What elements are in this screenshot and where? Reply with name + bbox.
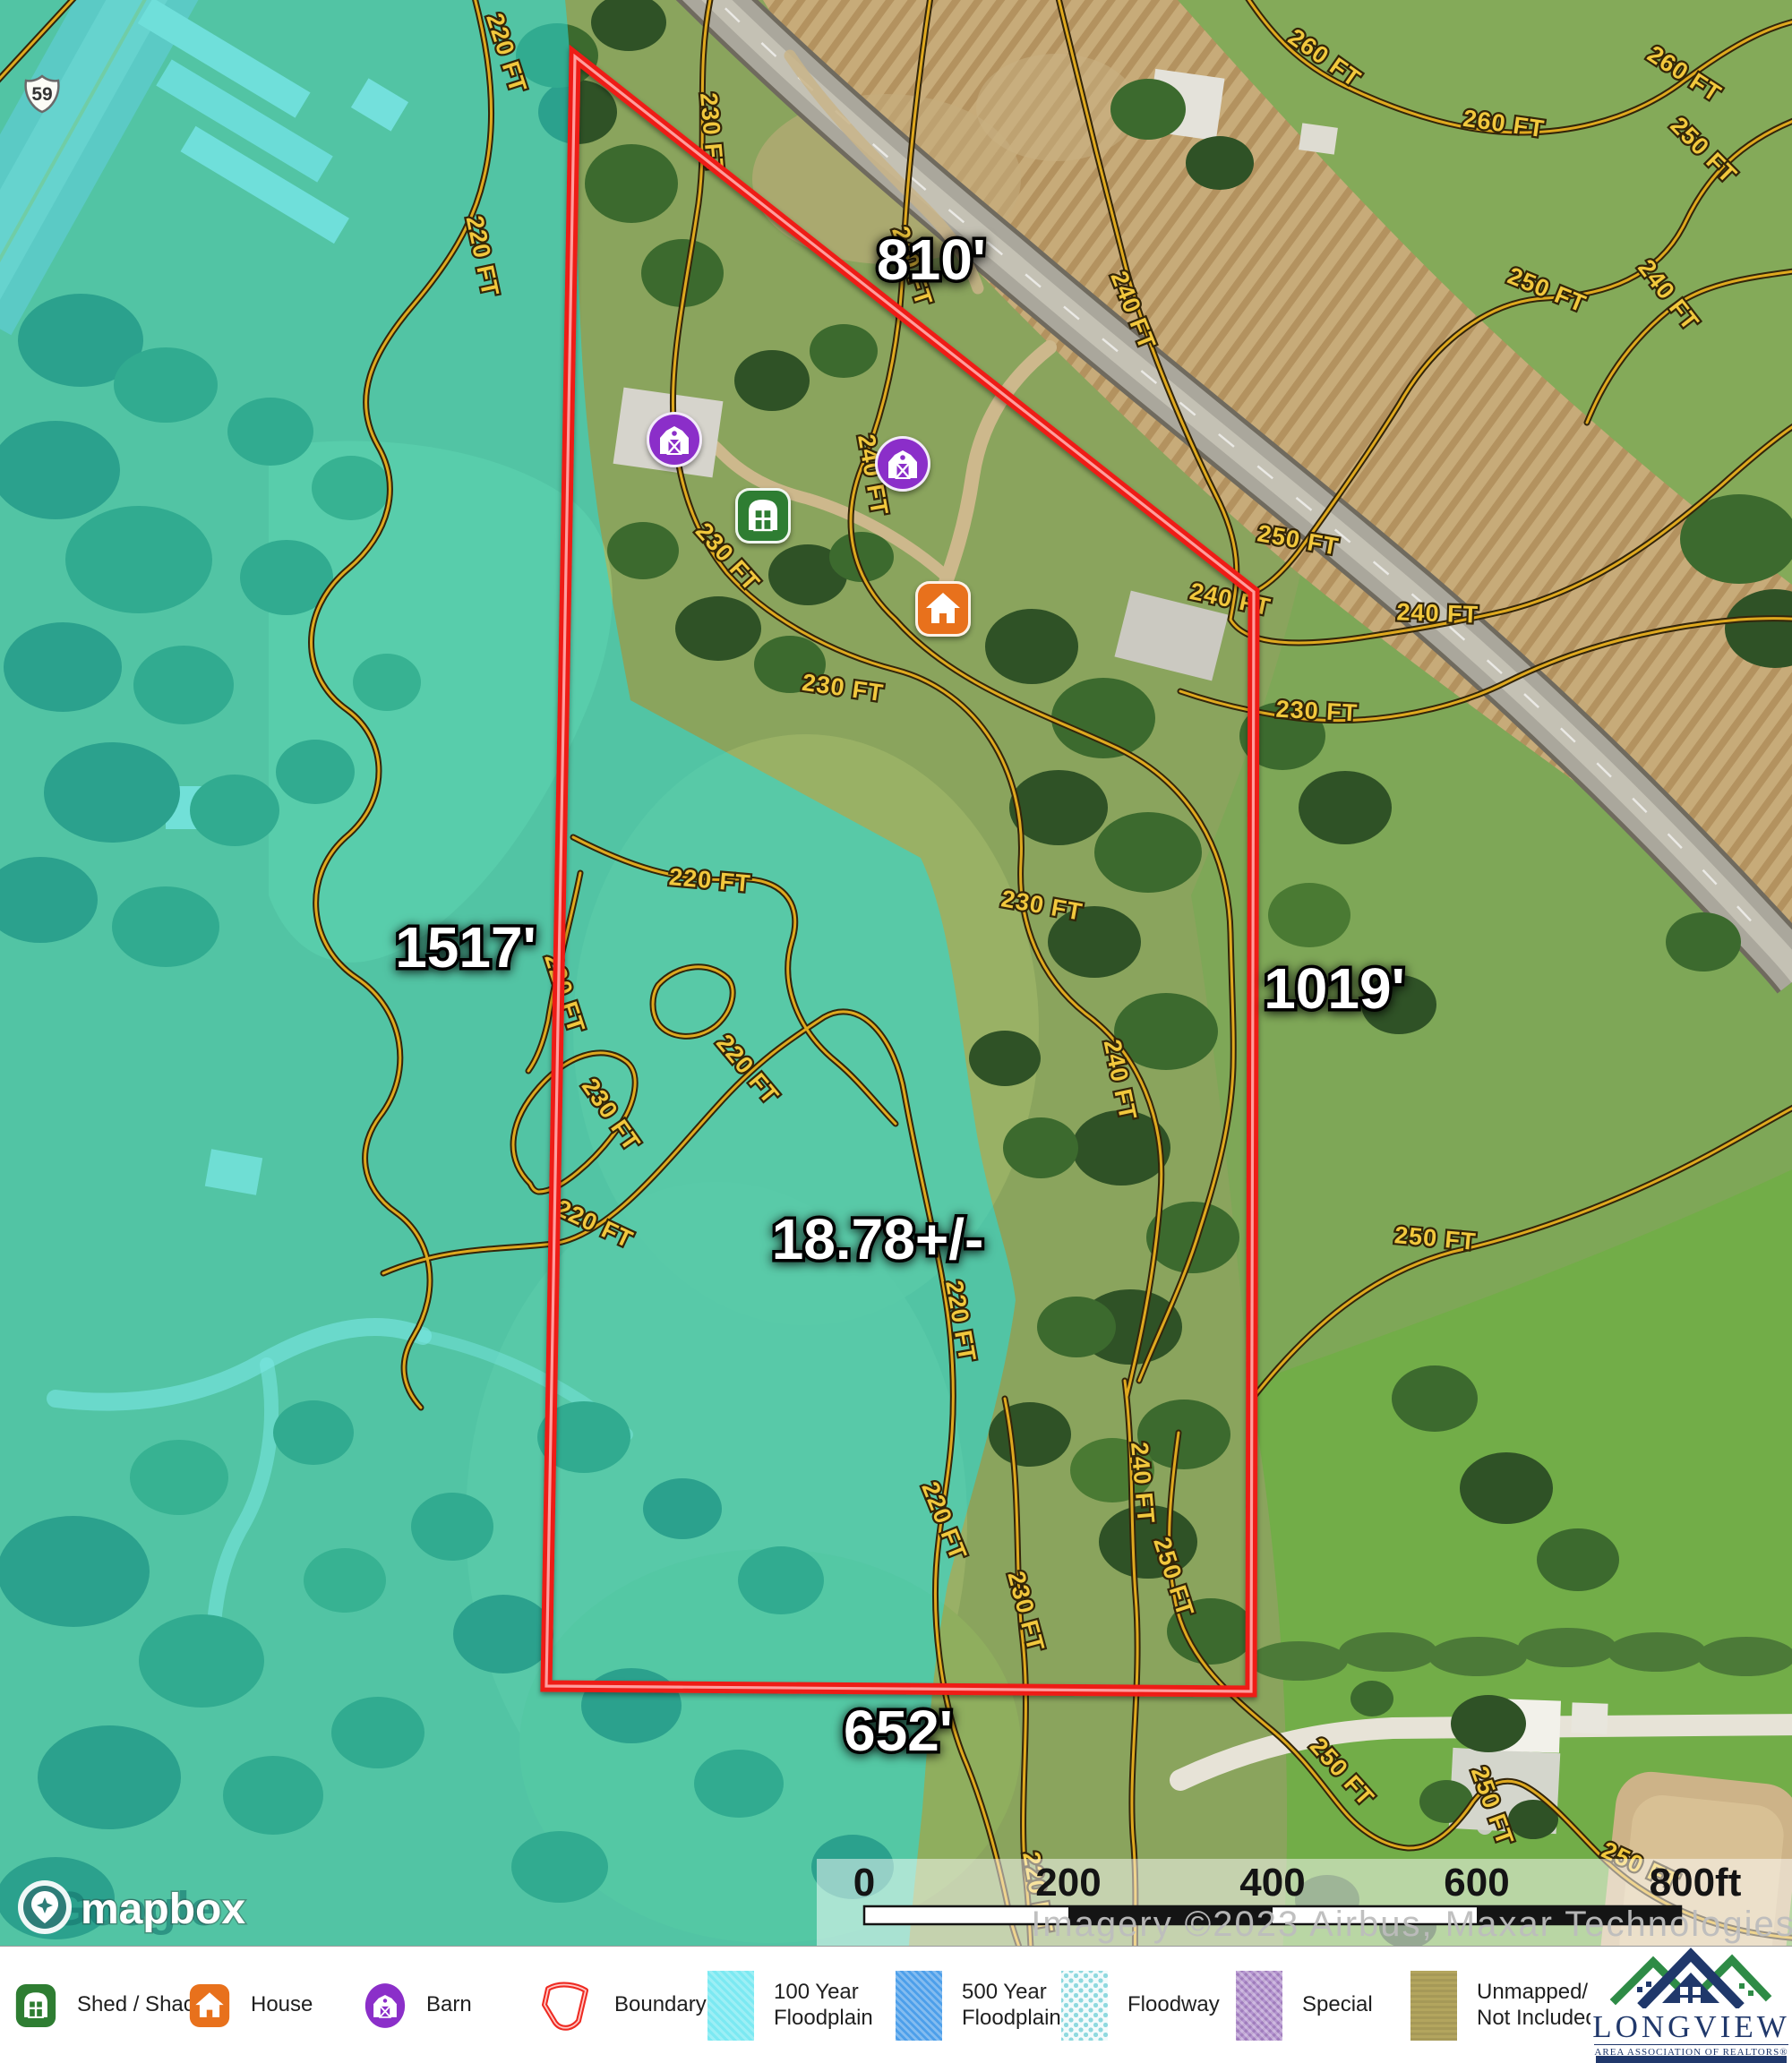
special-swatch <box>1236 1971 1282 2041</box>
side-length-right: 1019' <box>1264 956 1405 1021</box>
legend-item-500yr-floodplain: 500 Year Floodplain <box>896 1947 1062 2063</box>
flood-map-page: 220 FT 220 FT 230 FT 230 FT 240 FT 240 F… <box>0 0 1792 2063</box>
legend-item-floodway: Floodway <box>1061 1947 1220 2063</box>
legend-item-special: Special <box>1236 1947 1373 2063</box>
legend-item-100yr-floodplain: 100 Year Floodplain <box>707 1947 874 2063</box>
scale-tick: 600 <box>1444 1861 1509 1905</box>
mapbox-wordmark: mapbox <box>81 1886 245 1933</box>
side-length-bottom: 652' <box>844 1699 953 1763</box>
scale-tick: 0 <box>853 1861 875 1905</box>
rooftops-icon <box>1591 1947 1792 2008</box>
scale-tick: 200 <box>1035 1861 1101 1905</box>
logo-bar <box>1596 2056 1787 2063</box>
imagery-attribution: Imagery ©2023 Airbus, Maxar Technologies <box>1031 1905 1792 1944</box>
shed-icon <box>14 1982 57 2030</box>
floodway-swatch <box>1061 1971 1108 2041</box>
legend-item-barn: Barn <box>364 1947 472 2063</box>
unmapped-swatch <box>1410 1971 1457 2041</box>
floodplain-500yr-swatch <box>896 1971 942 2041</box>
scale-tick: 400 <box>1239 1861 1305 1905</box>
house-icon <box>188 1982 231 2030</box>
acreage-label: 18.78+/- <box>772 1207 984 1271</box>
mapbox-logo[interactable]: mapbox <box>18 1880 245 1934</box>
legend-label: Barn <box>426 1992 472 2017</box>
barn-marker[interactable] <box>875 436 930 492</box>
side-length-left: 1517' <box>395 915 536 980</box>
side-length-top: 810' <box>877 227 986 292</box>
barn-marker[interactable] <box>647 412 702 467</box>
contour-label: 230 FT <box>1275 696 1359 727</box>
boundary-icon <box>537 1978 595 2033</box>
map-legend: Shed / Shack House Barn Boundary 100 Yea… <box>0 1946 1792 2063</box>
legend-label: 100 Year Floodplain <box>774 1980 874 2031</box>
contour-label: 240 FT <box>1396 598 1479 628</box>
legend-label: Floodway <box>1128 1992 1220 2017</box>
scale-tick: 800ft <box>1650 1861 1742 1905</box>
legend-label: House <box>251 1992 313 2017</box>
legend-label: Special <box>1302 1992 1373 2017</box>
map-canvas[interactable]: 220 FT 220 FT 230 FT 230 FT 240 FT 240 F… <box>0 0 1792 1946</box>
shed-shack-marker[interactable] <box>735 488 791 544</box>
svg-text:59: 59 <box>31 84 52 105</box>
legend-item-boundary: Boundary <box>537 1947 707 2063</box>
house-marker[interactable] <box>915 581 971 637</box>
legend-item-house: House <box>188 1947 313 2063</box>
barn-icon <box>364 1981 407 2031</box>
legend-label: Boundary <box>614 1992 707 2017</box>
floodplain-100yr-swatch <box>707 1971 754 2041</box>
legend-label: Shed / Shack <box>77 1992 205 2017</box>
longview-realtors-logo: LONGVIEW AREA ASSOCIATION OF REALTORS® <box>1591 1947 1792 2063</box>
legend-item-shed-shack: Shed / Shack <box>14 1947 205 2063</box>
longview-wordmark: LONGVIEW <box>1591 2011 1792 2042</box>
legend-label: 500 Year Floodplain <box>962 1980 1062 2031</box>
